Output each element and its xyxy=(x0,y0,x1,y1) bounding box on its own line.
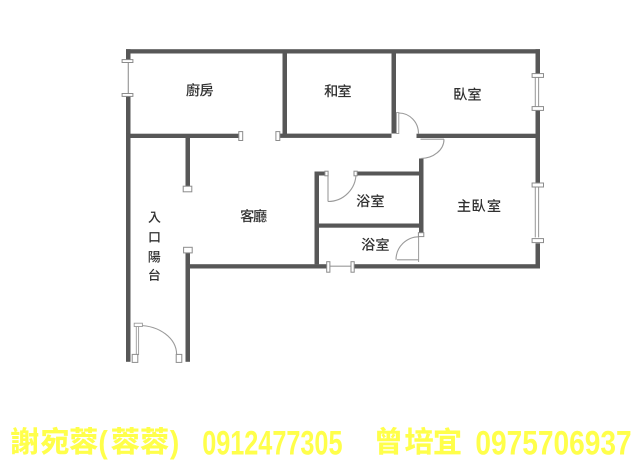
svg-text:): ) xyxy=(170,424,179,460)
svg-text:(: ( xyxy=(98,424,108,460)
svg-text:0975706937: 0975706937 xyxy=(475,424,631,462)
svg-text:0912477305: 0912477305 xyxy=(202,424,342,462)
